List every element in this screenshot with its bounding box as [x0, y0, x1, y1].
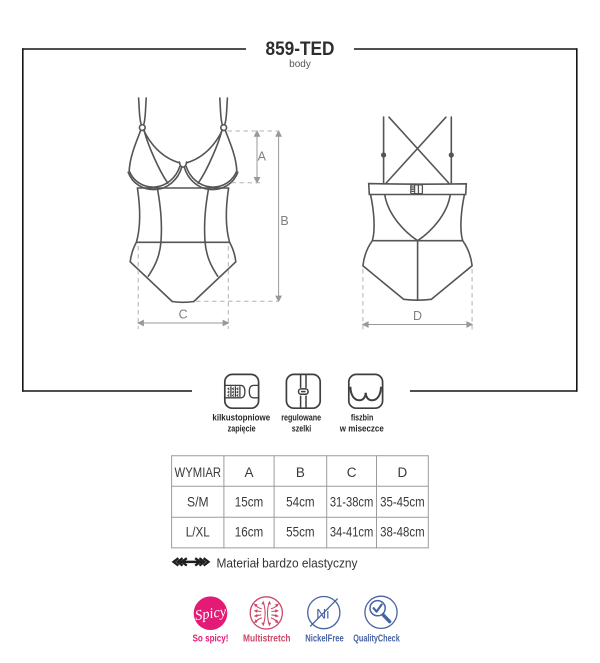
svg-text:35-45cm: 35-45cm — [380, 495, 425, 510]
svg-text:QualityCheck: QualityCheck — [353, 633, 400, 645]
svg-text:L/XL: L/XL — [186, 525, 210, 540]
svg-text:55cm: 55cm — [286, 525, 315, 540]
svg-text:38-48cm: 38-48cm — [380, 525, 425, 540]
svg-text:szelki: szelki — [292, 423, 312, 434]
svg-text:54cm: 54cm — [286, 495, 315, 510]
svg-text:D: D — [413, 309, 422, 323]
svg-text:kilkustopniowe: kilkustopniowe — [212, 412, 270, 423]
svg-text:w miseczce: w miseczce — [339, 423, 384, 434]
svg-text:zapięcie: zapięcie — [228, 423, 256, 434]
svg-text:16cm: 16cm — [235, 525, 264, 540]
svg-text:B: B — [296, 465, 305, 480]
svg-text:A: A — [244, 465, 253, 480]
svg-text:C: C — [347, 465, 357, 480]
svg-text:Multistretch: Multistretch — [243, 633, 291, 645]
svg-text:regulowane: regulowane — [281, 412, 321, 423]
svg-text:15cm: 15cm — [235, 495, 264, 510]
svg-text:S/M: S/M — [187, 495, 209, 510]
svg-text:B: B — [280, 214, 288, 228]
svg-text:body: body — [289, 59, 311, 70]
svg-text:fiszbin: fiszbin — [351, 412, 374, 423]
svg-text:NickelFree: NickelFree — [305, 633, 344, 645]
svg-text:Materiał bardzo elastyczny: Materiał bardzo elastyczny — [217, 555, 358, 570]
svg-text:34-41cm: 34-41cm — [330, 525, 374, 540]
svg-text:859-TED: 859-TED — [266, 39, 335, 60]
svg-text:C: C — [179, 308, 188, 322]
svg-text:So spicy!: So spicy! — [193, 633, 229, 645]
svg-text:WYMIAR: WYMIAR — [175, 465, 222, 480]
svg-text:A: A — [258, 149, 267, 163]
svg-text:31-38cm: 31-38cm — [330, 495, 374, 510]
svg-text:D: D — [398, 465, 408, 480]
